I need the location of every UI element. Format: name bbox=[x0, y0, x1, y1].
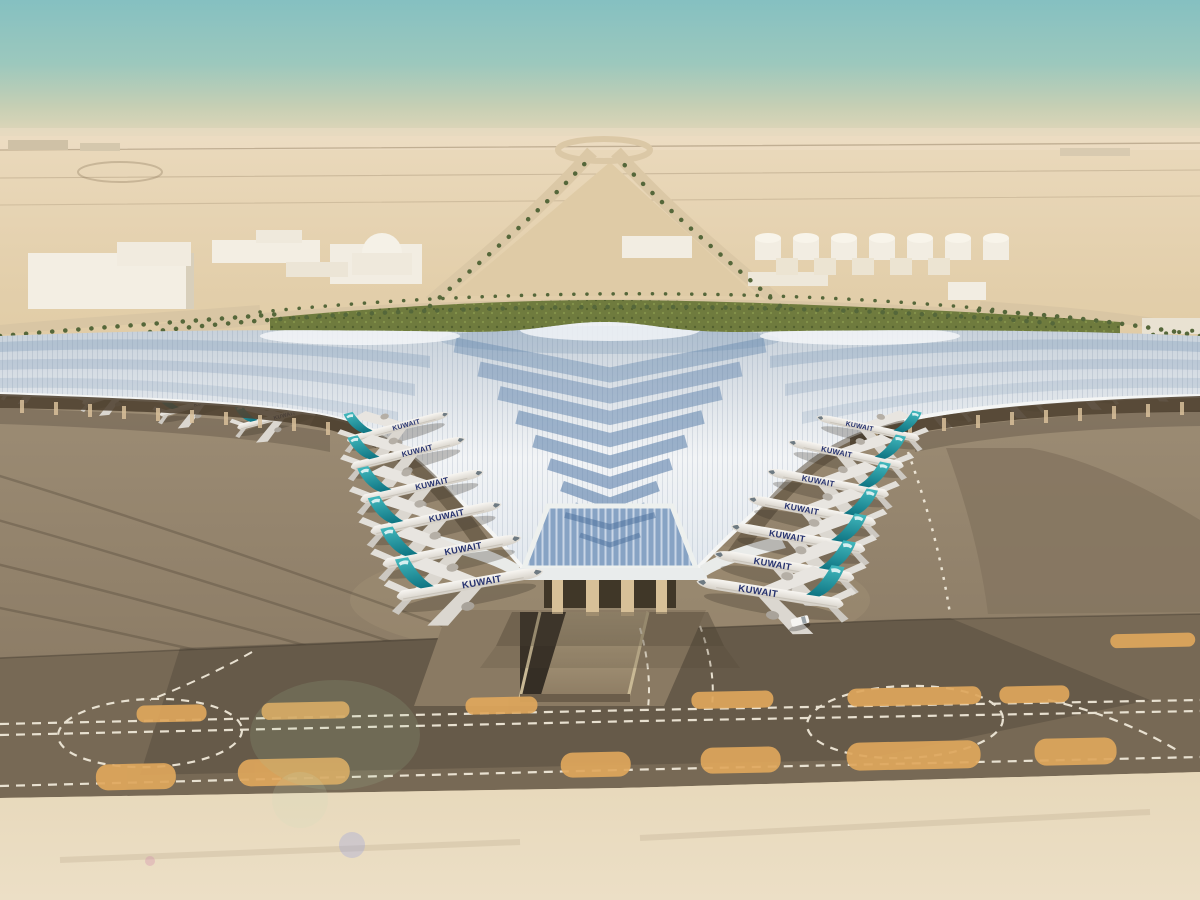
airport-rendering: KUWAIT KUWAIT KUWAIT bbox=[0, 0, 1200, 900]
scene-svg: KUWAIT KUWAIT KUWAIT bbox=[0, 0, 1200, 900]
sky bbox=[0, 0, 1200, 142]
